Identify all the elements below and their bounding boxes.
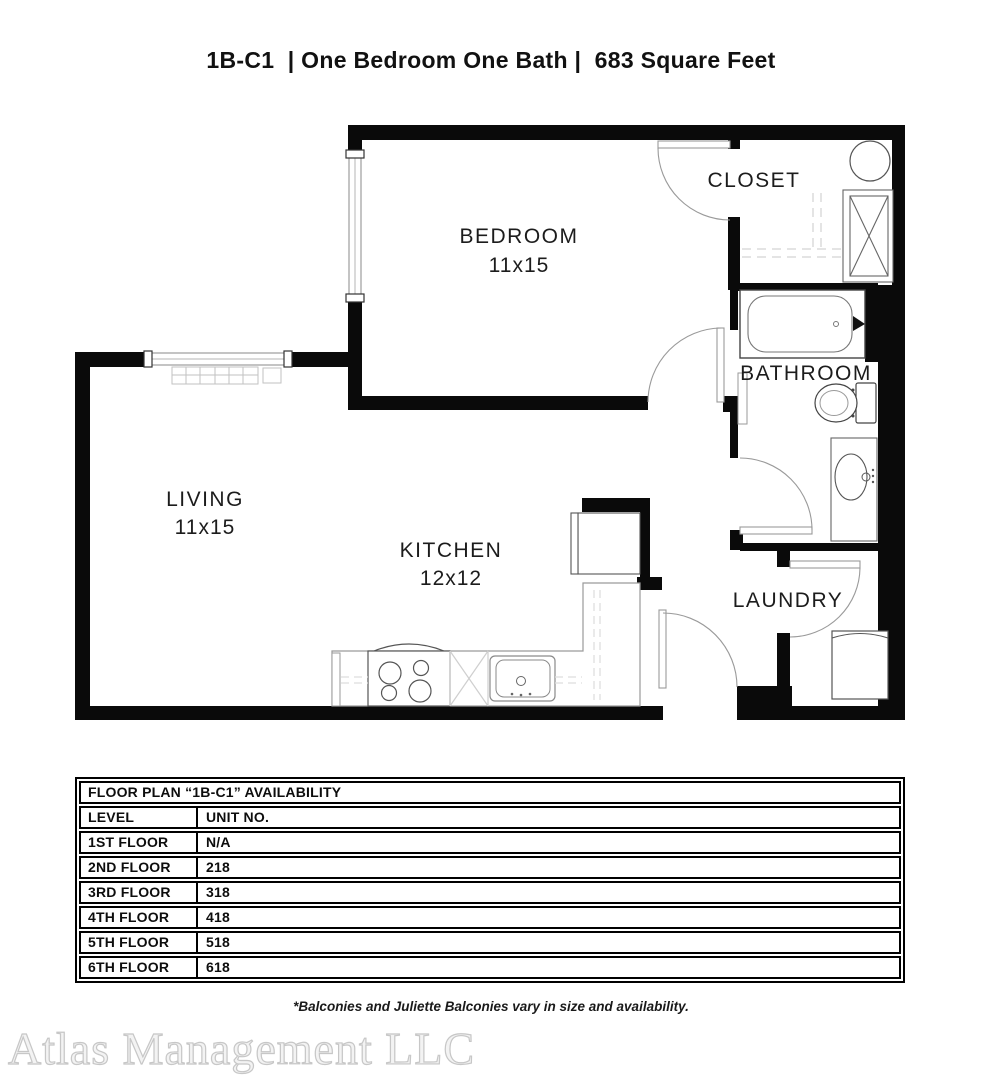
table-row: 5TH FLOOR 518 xyxy=(79,931,901,954)
level-cell: 2ND FLOOR xyxy=(81,858,196,877)
bathroom-door-icon xyxy=(740,458,812,534)
bedroom-window-icon xyxy=(346,150,364,302)
wall-divider-bath-upper xyxy=(730,290,738,330)
baseboard-heater-icon xyxy=(172,367,281,384)
kitchen-sink-icon xyxy=(490,656,555,701)
table-row: 1ST FLOOR N/A xyxy=(79,831,901,854)
table-row: 3RD FLOOR 318 xyxy=(79,881,901,904)
wall-right-upper xyxy=(892,140,905,286)
wall-bathroom-bottom xyxy=(740,543,878,551)
unit-cell: 318 xyxy=(196,883,899,902)
refrigerator-icon xyxy=(571,513,640,574)
closet-fixtures xyxy=(742,141,893,282)
level-cell: 1ST FLOOR xyxy=(81,833,196,852)
wall-bottom-laundry xyxy=(778,706,905,720)
wall-bedroom-door-corner xyxy=(723,396,740,412)
table-row: 6TH FLOOR 618 xyxy=(79,956,901,979)
mechanical-unit-icon xyxy=(843,190,893,282)
wall-bedroom-bottom xyxy=(348,396,648,410)
wall-top xyxy=(348,125,905,140)
column-header-level: LEVEL xyxy=(81,808,196,827)
room-label-closet: CLOSET xyxy=(707,168,800,194)
unit-cell: 218 xyxy=(196,858,899,877)
wall-bedroom-left-lower xyxy=(348,299,362,410)
counter-end-cap xyxy=(332,653,340,706)
table-title-row: FLOOR PLAN “1B-C1” AVAILABILITY xyxy=(79,781,901,804)
room-label-laundry: LAUNDRY xyxy=(733,588,843,614)
room-dims-kitchen: 12x12 xyxy=(420,567,482,591)
windows xyxy=(144,150,364,384)
room-dims-living: 11x15 xyxy=(175,516,236,540)
wall-tub-niche xyxy=(865,285,879,362)
unit-cell: N/A xyxy=(196,833,899,852)
wall-fridge-top xyxy=(582,498,650,512)
unit-cell: 518 xyxy=(196,933,899,952)
level-cell: 4TH FLOOR xyxy=(81,908,196,927)
wall-laundry-left xyxy=(777,633,790,720)
room-dims-bedroom: 11x15 xyxy=(489,254,550,278)
room-label-bathroom: BATHROOM xyxy=(740,361,872,387)
room-label-kitchen: KITCHEN xyxy=(400,538,503,564)
level-cell: 6TH FLOOR xyxy=(81,958,196,977)
unit-cell: 618 xyxy=(196,958,899,977)
wall-hall-stub xyxy=(637,577,662,590)
bathtub-icon xyxy=(740,290,865,358)
stove-icon xyxy=(368,644,450,706)
table-row: 2ND FLOOR 218 xyxy=(79,856,901,879)
floor-plan-page: 1B-C1 | One Bedroom One Bath | 683 Squar… xyxy=(0,0,982,1080)
room-label-living: LIVING xyxy=(166,487,244,513)
walls xyxy=(75,125,905,720)
table-header-row: LEVEL UNIT NO. xyxy=(79,806,901,829)
toilet-icon xyxy=(815,383,876,423)
water-heater-icon xyxy=(850,141,890,181)
wall-left xyxy=(75,352,90,720)
level-cell: 5TH FLOOR xyxy=(81,933,196,952)
wall-divider-mid xyxy=(728,217,740,290)
table-title: FLOOR PLAN “1B-C1” AVAILABILITY xyxy=(81,783,899,802)
level-cell: 3RD FLOOR xyxy=(81,883,196,902)
bedroom-door-icon xyxy=(648,328,724,402)
living-window-icon xyxy=(144,351,292,367)
wall-laundry-left-stub xyxy=(777,543,790,567)
watermark: Atlas Management LLC xyxy=(8,1022,475,1075)
unit-cell: 418 xyxy=(196,908,899,927)
wall-divider-bath-lower xyxy=(730,412,738,458)
room-label-bedroom: BEDROOM xyxy=(459,224,578,250)
column-header-unit: UNIT NO. xyxy=(196,808,899,827)
washer-dryer-icon xyxy=(832,631,888,699)
availability-table: FLOOR PLAN “1B-C1” AVAILABILITY LEVEL UN… xyxy=(75,777,905,983)
table-row: 4TH FLOOR 418 xyxy=(79,906,901,929)
wall-fridge-right xyxy=(640,512,650,580)
wall-living-top-1 xyxy=(75,352,148,367)
footnote: *Balconies and Juliette Balconies vary i… xyxy=(0,999,982,1014)
vanity-icon xyxy=(831,438,877,541)
closet-shelf-icon xyxy=(742,193,843,257)
entry-door-icon xyxy=(659,610,737,688)
wall-bottom-left xyxy=(75,706,663,720)
